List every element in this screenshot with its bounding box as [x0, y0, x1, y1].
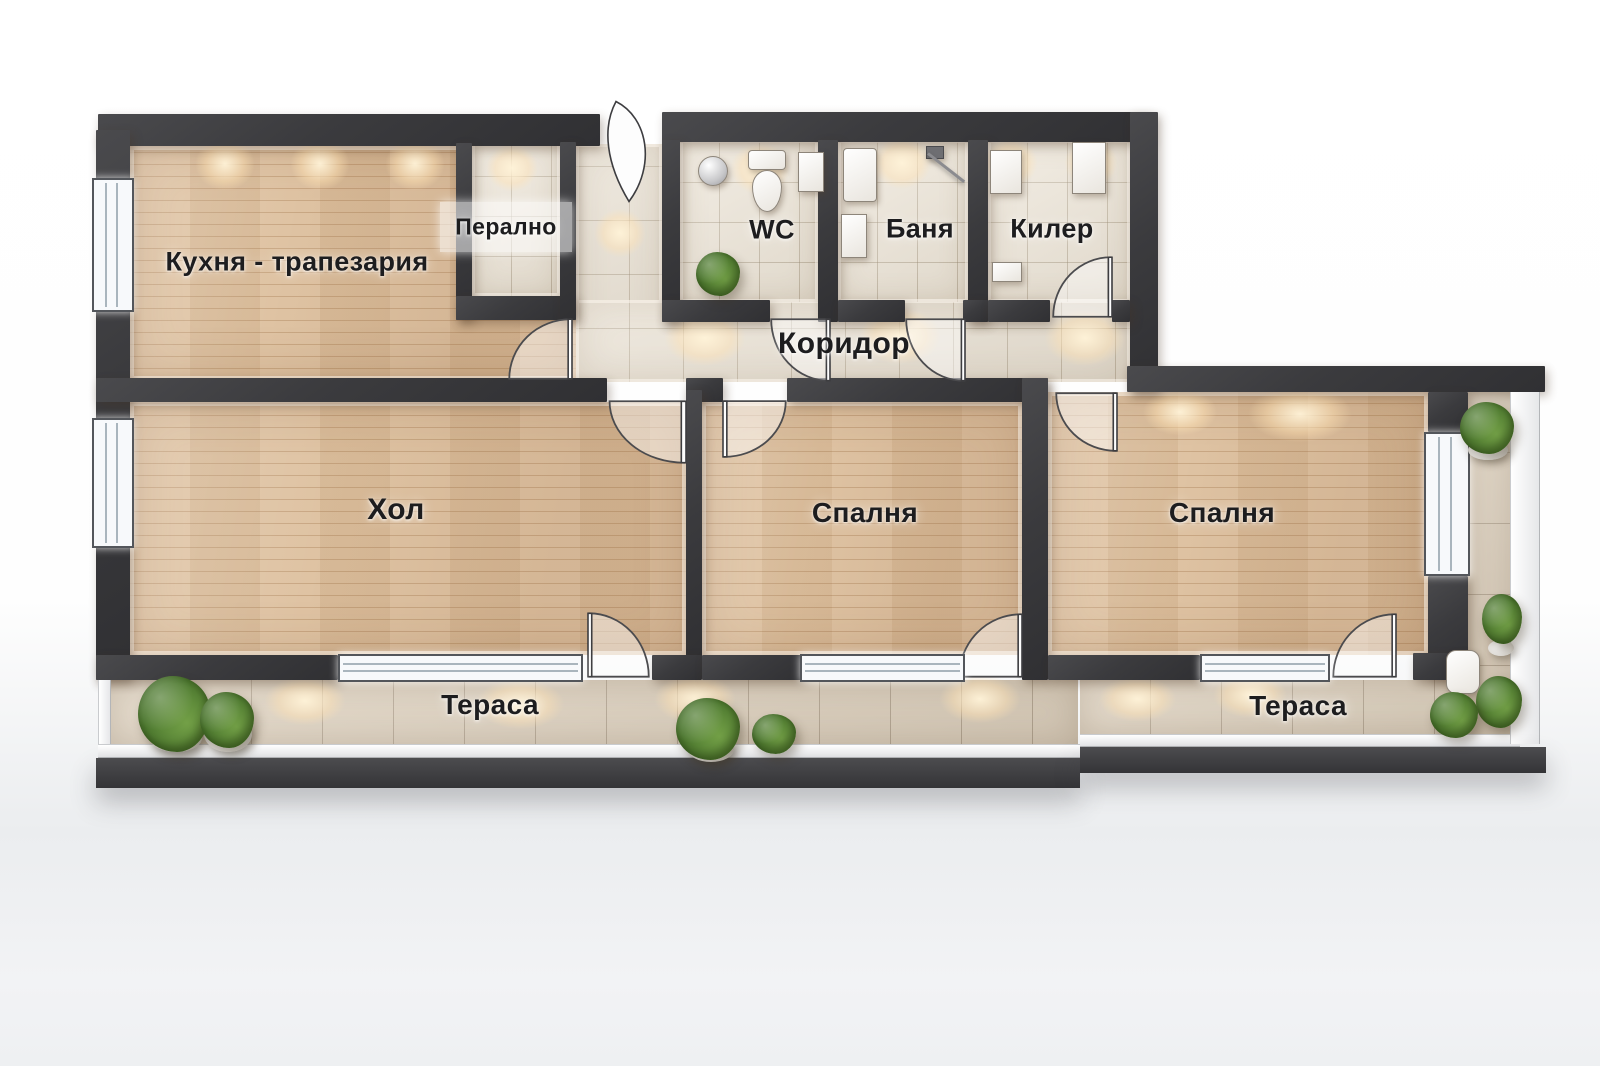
wc-cabinet — [798, 152, 824, 192]
terrace-plant — [676, 698, 740, 760]
terrace-plant — [1476, 676, 1522, 728]
label-living: Хол — [367, 493, 424, 527]
door-storage — [1052, 256, 1112, 318]
bath-cabinet — [841, 214, 867, 258]
terrace-plant — [200, 692, 254, 748]
label-bathroom: Баня — [886, 214, 954, 245]
floor-plan: Кухня - трапезария Перално WC Баня Килер… — [0, 0, 1600, 1066]
wall-bath-bottom-stub — [963, 300, 988, 322]
wall-bath-storage — [968, 140, 988, 322]
door-living — [608, 400, 686, 464]
door-kitchen — [508, 318, 572, 380]
storage-shelf-left — [990, 150, 1022, 194]
wall-wc-bottom — [662, 300, 770, 322]
label-bedroom1: Спалня — [812, 497, 918, 529]
window-bedroom2-right — [1424, 432, 1470, 576]
wc-pedestal-sink — [698, 156, 728, 186]
wall-storage-bottom — [988, 300, 1050, 322]
label-corridor: Коридор — [778, 327, 910, 361]
bath-washbasin — [843, 148, 877, 202]
door-entrance — [602, 98, 662, 206]
storage-box — [992, 262, 1022, 282]
terrace-plant — [1430, 692, 1478, 738]
window-bedroom1-bottom — [800, 654, 965, 682]
wall-wing-top — [1127, 366, 1545, 392]
door-bedroom1 — [723, 400, 787, 458]
window-living-bottom — [338, 654, 583, 682]
terrace-plant — [752, 714, 796, 754]
terrace-lounge-chair — [1446, 650, 1480, 694]
wall-bedroom1-right — [1022, 378, 1048, 680]
wall-bottom-bedroom2 — [1048, 655, 1200, 680]
wall-storage-bottom-stub — [1112, 300, 1130, 322]
door-bathroom — [905, 318, 965, 382]
wall-bottom-left — [96, 655, 338, 680]
wall-middle-left — [96, 378, 607, 402]
label-terrace-left: Тераса — [441, 689, 539, 721]
terrace-right-ledge — [1080, 747, 1546, 773]
window-kitchen-left — [92, 178, 134, 312]
label-laundry: Перално — [455, 214, 557, 241]
wall-top-core — [662, 112, 1150, 142]
wall-top-kitchen — [98, 114, 600, 146]
wall-bottom-bedroom1 — [702, 655, 805, 680]
door-living-terrace — [588, 612, 650, 678]
terrace-left-ledge — [96, 758, 1080, 788]
storage-shelf-right — [1072, 142, 1106, 194]
toilet-tank — [748, 150, 786, 170]
terrace-plant — [1460, 402, 1514, 454]
terrace-plant — [138, 676, 210, 752]
wall-bath-bottom — [838, 300, 905, 322]
window-bedroom2-bottom — [1200, 654, 1330, 682]
door-bedroom2 — [1055, 392, 1117, 452]
wall-wc-left — [662, 140, 680, 322]
terrace-plant — [1482, 594, 1522, 644]
wc-plant — [696, 252, 740, 296]
wall-laundry-bottom — [456, 296, 576, 320]
terrace-left-floor — [110, 680, 1078, 746]
label-bedroom2: Спалня — [1169, 497, 1275, 529]
door-bedroom2-terrace — [1332, 613, 1396, 678]
label-terrace-right: Тераса — [1249, 690, 1347, 722]
window-living-left — [92, 418, 134, 548]
label-wc: WC — [749, 215, 795, 246]
wall-core-right — [1130, 112, 1158, 392]
terrace-left-rail-side — [98, 680, 111, 752]
wall-bottom-mid — [652, 655, 702, 680]
label-storage: Килер — [1010, 214, 1093, 245]
wall-living-bedroom1 — [686, 390, 702, 657]
label-kitchen: Кухня - трапезария — [165, 247, 428, 278]
door-bedroom1-terrace — [958, 613, 1022, 678]
